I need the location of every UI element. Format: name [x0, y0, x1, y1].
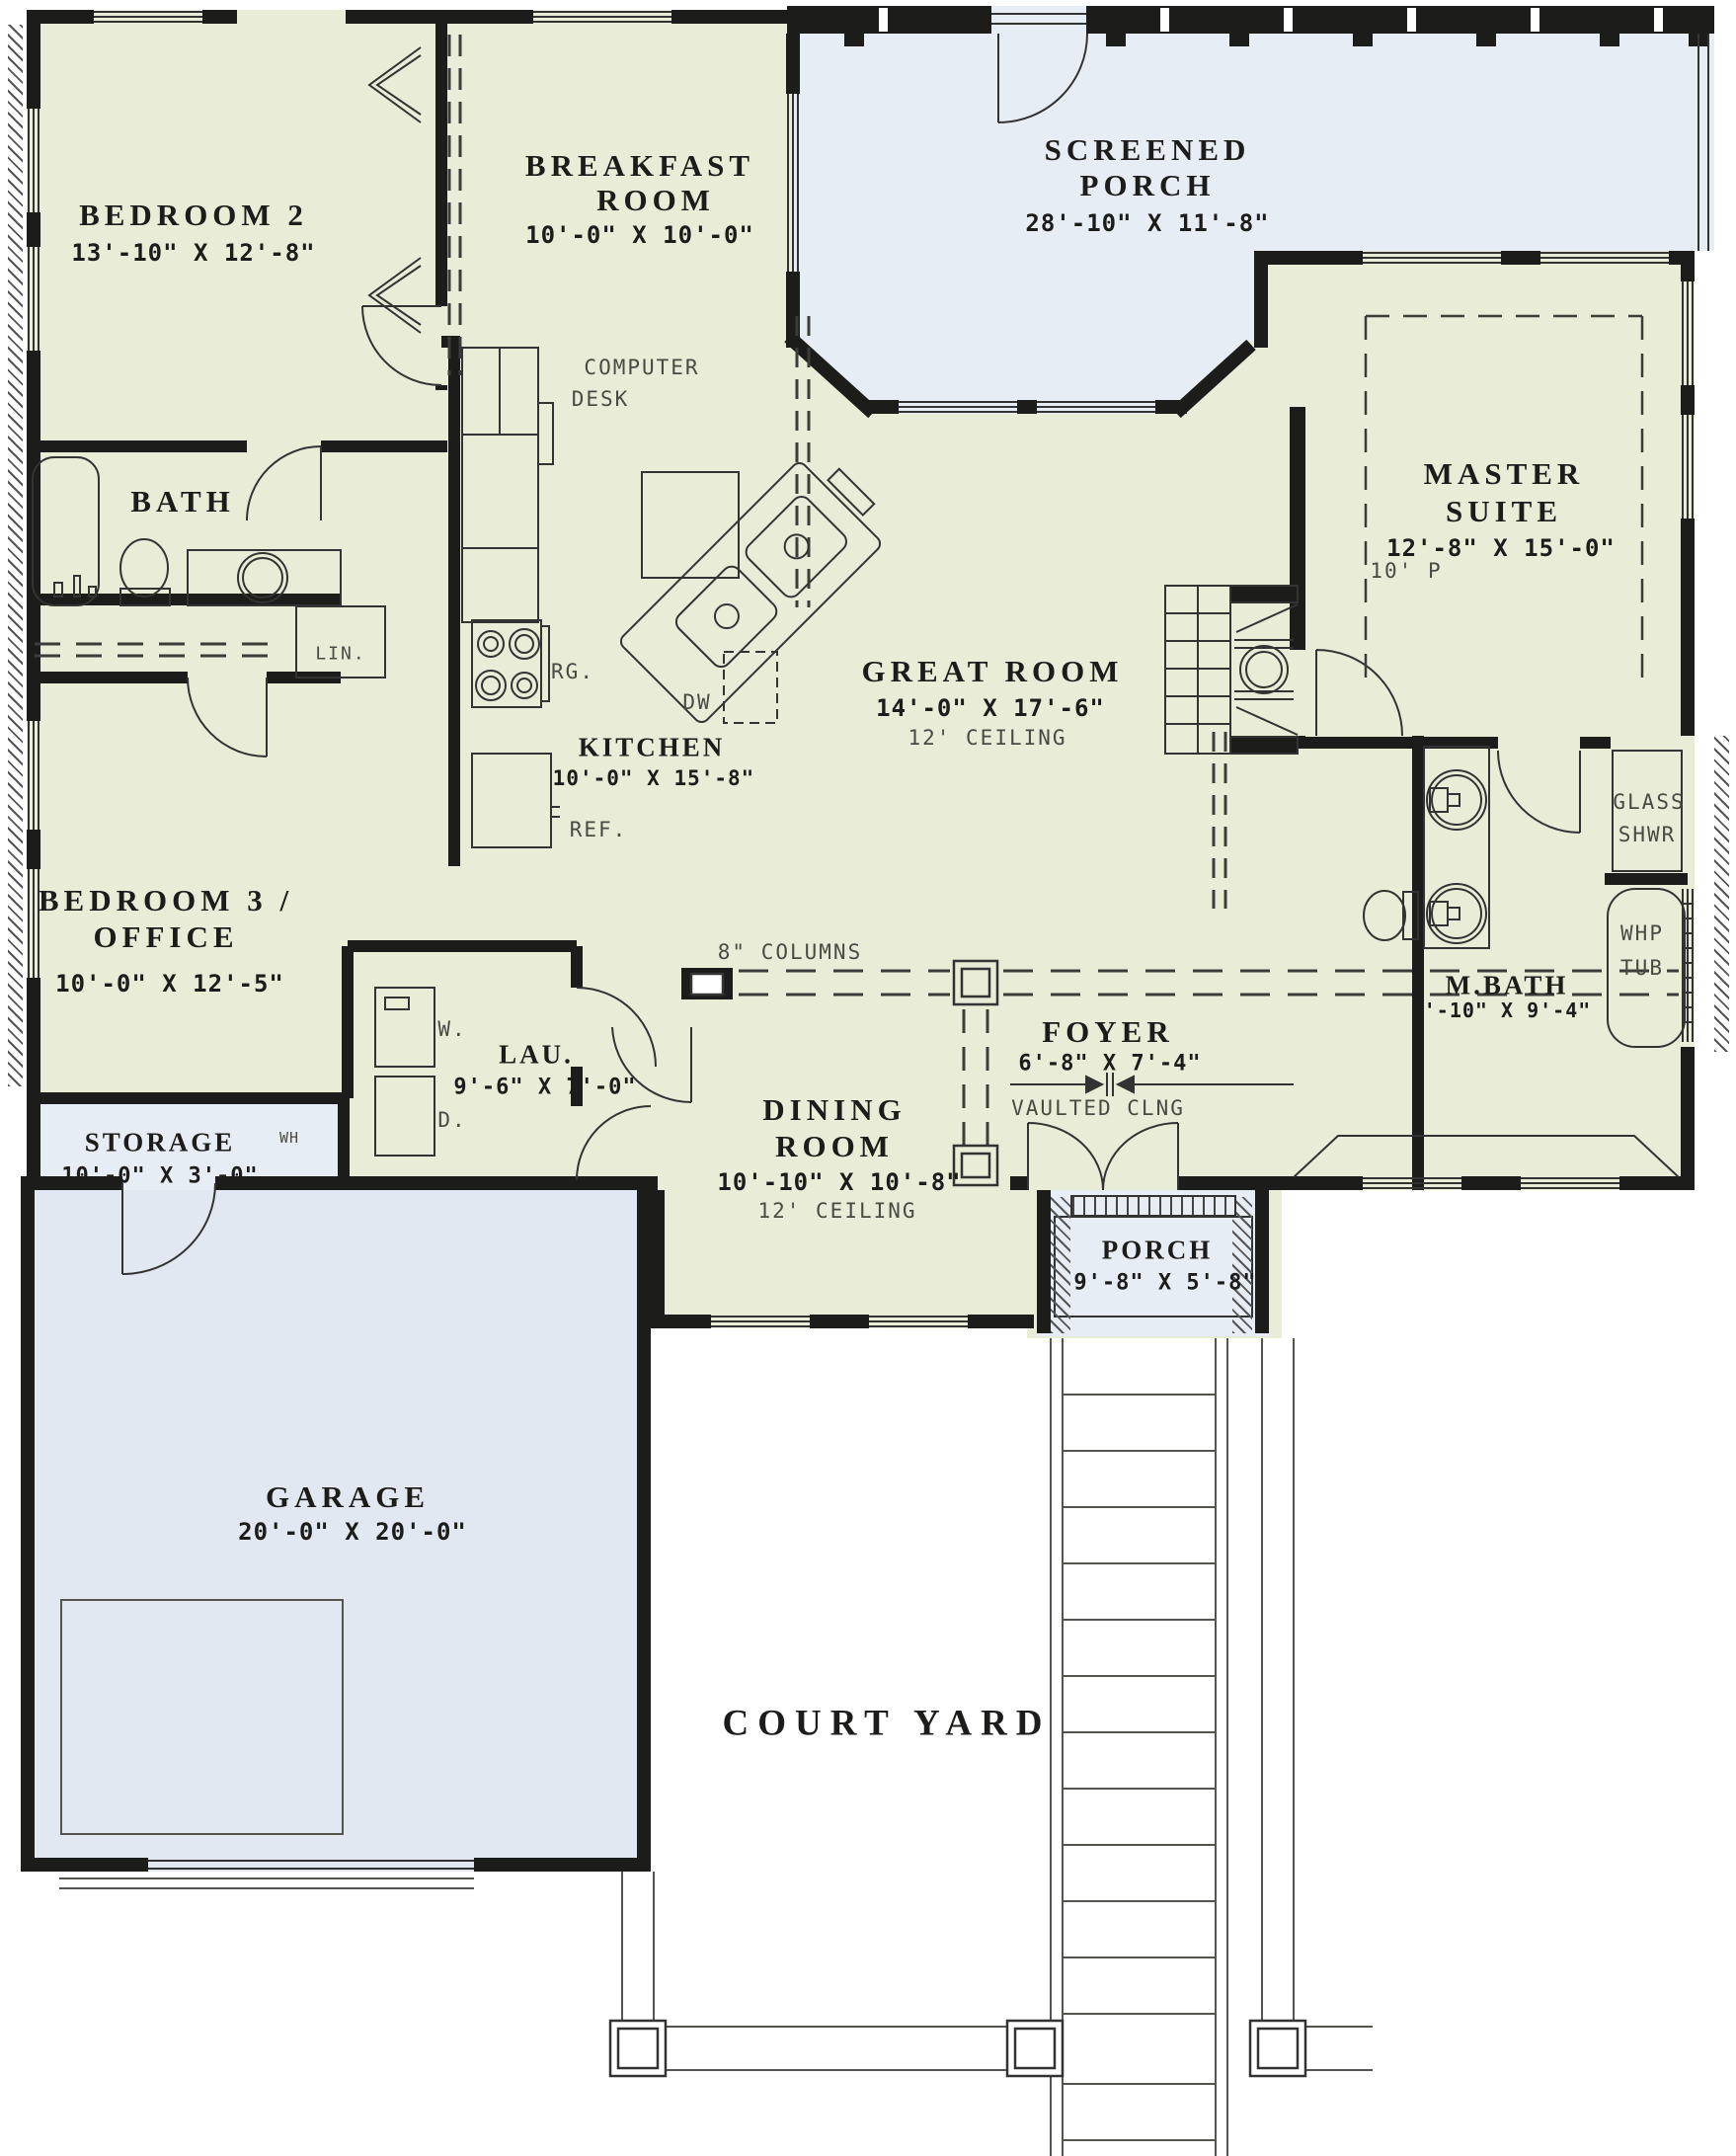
great-room-ceiling: 12' CEILING [907, 726, 1066, 750]
dining-ceiling: 12' CEILING [757, 1199, 916, 1223]
entry-porch-dims: 9'-8" X 5'-8" [1073, 1271, 1256, 1296]
screened-porch-label-2: PORCH [1080, 168, 1216, 203]
kitchen-dims: 10'-0" X 15'-8" [553, 766, 755, 790]
computer-desk-label-1: COMPUTER [584, 356, 699, 379]
bedroom2-label: BEDROOM 2 [79, 198, 308, 233]
laundry-label: LAU. [499, 1040, 574, 1071]
garage-label: GARAGE [266, 1479, 430, 1515]
bath-label: BATH [130, 484, 235, 519]
kitchen-label: KITCHEN [579, 733, 726, 763]
foyer-ceiling: VAULTED CLNG [1011, 1096, 1185, 1120]
linen-label: LIN. [315, 644, 365, 665]
garage-dims: 20'-0" X 20'-0" [238, 1518, 467, 1546]
columns-label: 8" COLUMNS [718, 940, 862, 964]
foyer-dims: 6'-8" X 7'-4" [1018, 1052, 1201, 1077]
master-dims: 12'-8" X 15'-0" [1386, 534, 1616, 562]
right-edge-hatch [1714, 736, 1729, 1052]
bedroom3-label-2: OFFICE [93, 919, 238, 955]
dishwasher-label: DW [682, 690, 711, 714]
dining-dims: 10'-10" X 10'-8" [717, 1168, 961, 1196]
dryer-label: D. [437, 1108, 466, 1132]
whirlpool-tub-label-2: TUB [1620, 956, 1664, 980]
glass-shower-label-2: SHWR [1618, 823, 1677, 846]
washer-label: W. [437, 1017, 466, 1041]
court-yard-label: COURT YARD [722, 1703, 1051, 1745]
breakfast-label-2: ROOM [596, 183, 715, 218]
refrigerator-label: REF. [570, 818, 628, 841]
great-room-dims: 14'-0" X 17'-6" [876, 694, 1105, 722]
master-bath-label: M.BATH [1446, 971, 1569, 1001]
room-fills [27, 10, 1714, 1872]
porch-hatch-right [1232, 1197, 1252, 1333]
breakfast-dims: 10'-0" X 10'-0" [525, 221, 754, 249]
screened-porch-dims: 28'-10" X 11'-8" [1025, 209, 1269, 237]
courtyard-columns [610, 2021, 1305, 2076]
range-label: RG. [551, 660, 594, 683]
porch-brick-edge [1070, 1195, 1236, 1217]
master-label-2: SUITE [1446, 494, 1562, 529]
screened-porch-label-1: SCREENED [1045, 132, 1251, 168]
computer-desk-label-2: DESK [572, 387, 630, 411]
breakfast-label-1: BREAKFAST [525, 148, 754, 184]
dining-label-1: DINING [762, 1092, 906, 1128]
floor-plan-drawing [0, 0, 1736, 2156]
storage-dims: 10'-0" X 3'-0" [61, 1164, 258, 1189]
foyer-label: FOYER [1042, 1014, 1174, 1050]
porch-hatch-left [1051, 1197, 1070, 1333]
master-bath-dims: 8'-10" X 9'-4" [1411, 998, 1592, 1022]
whirlpool-tub-label-1: WHP [1620, 921, 1664, 945]
water-heater-label: WH [279, 1129, 299, 1147]
bedroom3-dims: 10'-0" X 12'-5" [55, 970, 284, 998]
storage-label: STORAGE [85, 1128, 236, 1158]
floor-plan: BEDROOM 2 13'-10" X 12'-8" BREAKFAST ROO… [0, 0, 1736, 2156]
bedroom3-label-1: BEDROOM 3 / [39, 883, 293, 918]
entry-porch-label: PORCH [1102, 1236, 1214, 1266]
dining-label-2: ROOM [775, 1129, 894, 1164]
master-label-1: MASTER [1424, 456, 1585, 492]
laundry-dims: 9'-6" X 7'-0" [453, 1076, 636, 1100]
glass-shower-label-1: GLASS [1613, 790, 1685, 814]
great-room-label: GREAT ROOM [861, 654, 1123, 689]
left-edge-hatch [8, 25, 23, 1086]
bedroom2-dims: 13'-10" X 12'-8" [71, 239, 315, 267]
master-plate: 10' P [1370, 559, 1442, 583]
